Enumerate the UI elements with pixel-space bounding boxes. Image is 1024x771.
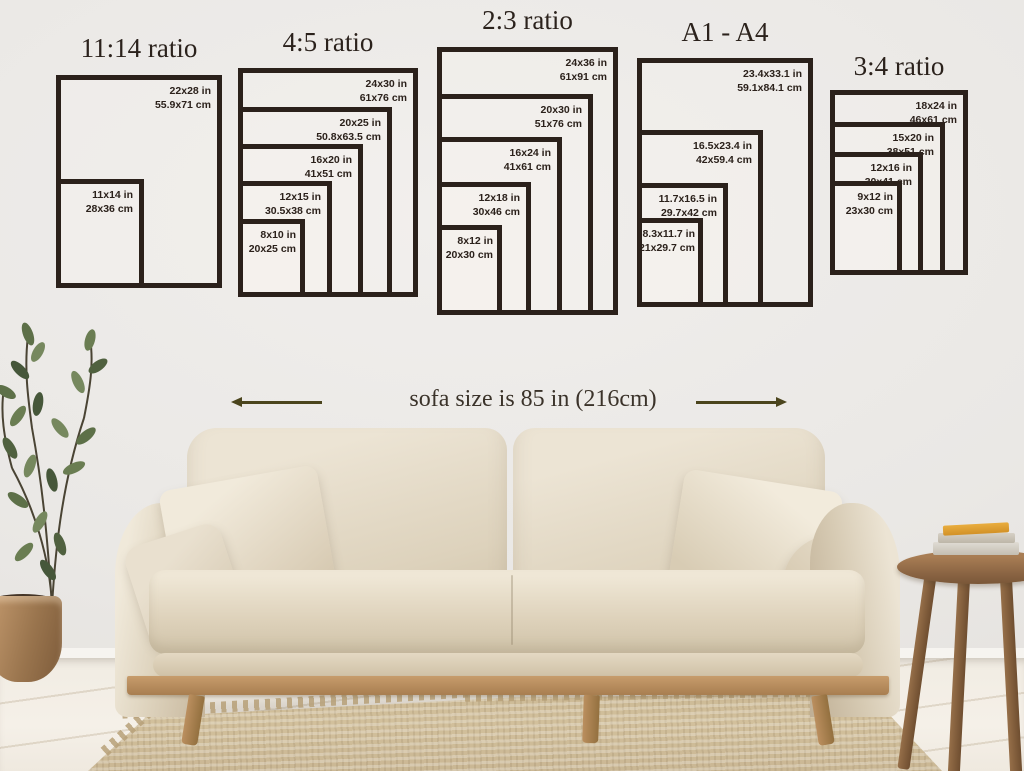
- ratio-group-3-4: 3:4 ratio 18x24 in 46x61 cm 15x20 in 38x…: [830, 90, 968, 275]
- size-cm: 50.8x63.5 cm: [316, 131, 381, 145]
- sofa-width-arrow-left: [240, 401, 322, 404]
- sofa-width-arrow-right: [696, 401, 778, 404]
- size-inches: 11.7x16.5 in: [659, 193, 717, 207]
- frame-size-label: 9x12 in 23x30 cm: [846, 191, 893, 218]
- size-inches: 24x30 in: [360, 78, 407, 92]
- side-table: [893, 542, 1024, 771]
- ratio-group-a1-a4: A1 - A4 23.4x33.1 in 59.1x84.1 cm 16.5x2…: [637, 58, 813, 307]
- frame-size-label: 20x30 in 51x76 cm: [535, 104, 582, 131]
- size-inches: 12x15 in: [265, 191, 321, 205]
- size-cm: 30.5x38 cm: [265, 205, 321, 219]
- frame-size-label: 11x14 in 28x36 cm: [86, 189, 133, 216]
- sofa-leg: [582, 695, 600, 744]
- table-leg: [1000, 574, 1022, 771]
- frame-size-label: 16x20 in 41x51 cm: [305, 154, 352, 181]
- ratio-group-2-3: 2:3 ratio 24x36 in 61x91 cm 20x30 in 51x…: [437, 47, 618, 315]
- size-inches: 20x30 in: [535, 104, 582, 118]
- ratio-group-title: A1 - A4: [682, 18, 769, 46]
- ratio-group-4-5: 4:5 ratio 24x30 in 61x76 cm 20x25 in 50.…: [238, 68, 418, 297]
- size-inches: 22x28 in: [155, 85, 211, 99]
- size-inches: 24x36 in: [560, 57, 607, 71]
- size-cm: 42x59.4 cm: [693, 154, 752, 168]
- size-inches: 8x12 in: [446, 235, 493, 249]
- ratio-group-title: 4:5 ratio: [283, 28, 374, 56]
- sofa-base-cushion: [153, 653, 863, 677]
- size-inches: 16x24 in: [504, 147, 551, 161]
- size-inches: 15x20 in: [887, 132, 934, 146]
- size-inches: 12x18 in: [473, 192, 520, 206]
- size-cm: 41x61 cm: [504, 161, 551, 175]
- frame-size-label: 16.5x23.4 in 42x59.4 cm: [693, 140, 752, 167]
- size-inches: 8x10 in: [249, 229, 296, 243]
- ratio-group-title: 2:3 ratio: [482, 6, 573, 34]
- size-cm: 61x76 cm: [360, 92, 407, 106]
- sofa: [115, 425, 900, 725]
- plant-leaves: [0, 321, 110, 583]
- ratio-group-title: 3:4 ratio: [854, 52, 945, 80]
- size-cm: 59.1x84.1 cm: [737, 82, 802, 96]
- frame-size-label: 12x15 in 30.5x38 cm: [265, 191, 321, 218]
- size-inches: 16x20 in: [305, 154, 352, 168]
- size-cm: 51x76 cm: [535, 118, 582, 132]
- arrowhead-left: [231, 397, 242, 407]
- size-inches: 12x16 in: [865, 162, 912, 176]
- ratio-group-title: 11:14 ratio: [81, 34, 198, 62]
- size-cm: 20x30 cm: [446, 249, 493, 263]
- frame-size-label: 23.4x33.1 in 59.1x84.1 cm: [737, 68, 802, 95]
- size-cm: 41x51 cm: [305, 168, 352, 182]
- frame-size-label: 22x28 in 55.9x71 cm: [155, 85, 211, 112]
- size-inches: 11x14 in: [86, 189, 133, 203]
- frame-size-label: 8.3x11.7 in 21x29.7 cm: [639, 228, 695, 255]
- frame-size-label: 12x18 in 30x46 cm: [473, 192, 520, 219]
- table-leg: [897, 574, 936, 770]
- size-cm: 55.9x71 cm: [155, 99, 211, 113]
- frame-size-label: 16x24 in 41x61 cm: [504, 147, 551, 174]
- book: [933, 542, 1019, 555]
- sofa-seat-seam: [511, 575, 513, 645]
- table-leg: [948, 574, 971, 771]
- plant-pot: [0, 596, 62, 682]
- frame-11x14: 11x14 in 28x36 cm: [56, 179, 144, 288]
- size-inches: 16.5x23.4 in: [693, 140, 752, 154]
- frame-8x10: 8x10 in 20x25 cm: [238, 219, 305, 297]
- size-cm: 21x29.7 cm: [639, 242, 695, 256]
- frame-size-label: 11.7x16.5 in 29.7x42 cm: [659, 193, 717, 220]
- frame-8x12: 8x12 in 20x30 cm: [437, 225, 502, 315]
- size-cm: 20x25 cm: [249, 243, 296, 257]
- size-inches: 18x24 in: [910, 100, 957, 114]
- sofa-size-caption: sofa size is 85 in (216cm): [333, 386, 733, 413]
- sofa-wood-rail: [127, 676, 889, 695]
- size-inches: 9x12 in: [846, 191, 893, 205]
- size-cm: 23x30 cm: [846, 205, 893, 219]
- size-inches: 20x25 in: [316, 117, 381, 131]
- size-inches: 8.3x11.7 in: [639, 228, 695, 242]
- size-cm: 28x36 cm: [86, 203, 133, 217]
- size-inches: 23.4x33.1 in: [737, 68, 802, 82]
- size-cm: 61x91 cm: [560, 71, 607, 85]
- sofa-seat-cushion: [149, 570, 865, 654]
- frame-size-label: 8x10 in 20x25 cm: [249, 229, 296, 256]
- size-cm: 30x46 cm: [473, 206, 520, 220]
- frame-a4: 8.3x11.7 in 21x29.7 cm: [637, 218, 703, 307]
- table-top: [897, 550, 1024, 584]
- ratio-group-11-14: 11:14 ratio 22x28 in 55.9x71 cm 11x14 in…: [56, 75, 222, 288]
- arrowhead-right: [776, 397, 787, 407]
- frame-size-label: 24x36 in 61x91 cm: [560, 57, 607, 84]
- frame-size-label: 20x25 in 50.8x63.5 cm: [316, 117, 381, 144]
- frame-size-label: 24x30 in 61x76 cm: [360, 78, 407, 105]
- potted-plant: [0, 308, 128, 608]
- frame-size-label: 8x12 in 20x30 cm: [446, 235, 493, 262]
- wall-art-size-guide-scene: sofa size is 85 in (216cm) 11:14 ratio 2…: [0, 0, 1024, 771]
- frame-9x12: 9x12 in 23x30 cm: [830, 181, 902, 275]
